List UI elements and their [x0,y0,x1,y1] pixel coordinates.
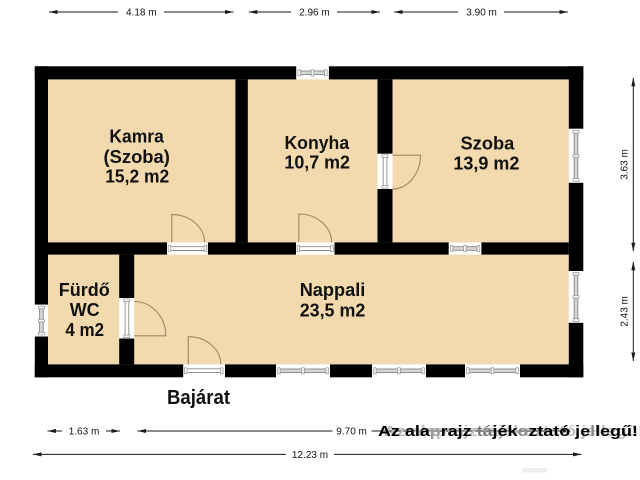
svg-text:Szoba: Szoba [461,132,515,153]
svg-text:15,2 m2: 15,2 m2 [105,165,169,186]
svg-text:Nappali: Nappali [300,279,366,300]
svg-text:3.90 m: 3.90 m [466,8,497,19]
svg-text:10,7 m2: 10,7 m2 [284,151,350,172]
svg-text:2.43 m: 2.43 m [620,296,631,327]
svg-text:4 m2: 4 m2 [65,319,104,340]
svg-text:12.23 m: 12.23 m [292,450,328,461]
svg-text:Az alaprajz tájékoztató jelleg: Az alaprajz tájékoztató jellegű! [378,422,638,439]
svg-text:3.63 m: 3.63 m [620,149,631,180]
svg-text:Kamra: Kamra [109,126,164,147]
svg-text:9.70 m: 9.70 m [336,427,367,438]
svg-text:WC: WC [70,299,100,320]
svg-text:Bajárat: Bajárat [167,387,230,409]
svg-text:Fürdő: Fürdő [59,279,110,300]
svg-text:1.63 m: 1.63 m [69,427,100,438]
svg-text:13,9 m2: 13,9 m2 [453,152,519,173]
svg-text:4.18 m: 4.18 m [126,8,157,19]
svg-text:2.96 m: 2.96 m [299,8,330,19]
svg-text:Konyha: Konyha [284,132,349,153]
svg-text:23,5 m2: 23,5 m2 [300,300,366,321]
svg-text:(Szoba): (Szoba) [104,146,170,167]
